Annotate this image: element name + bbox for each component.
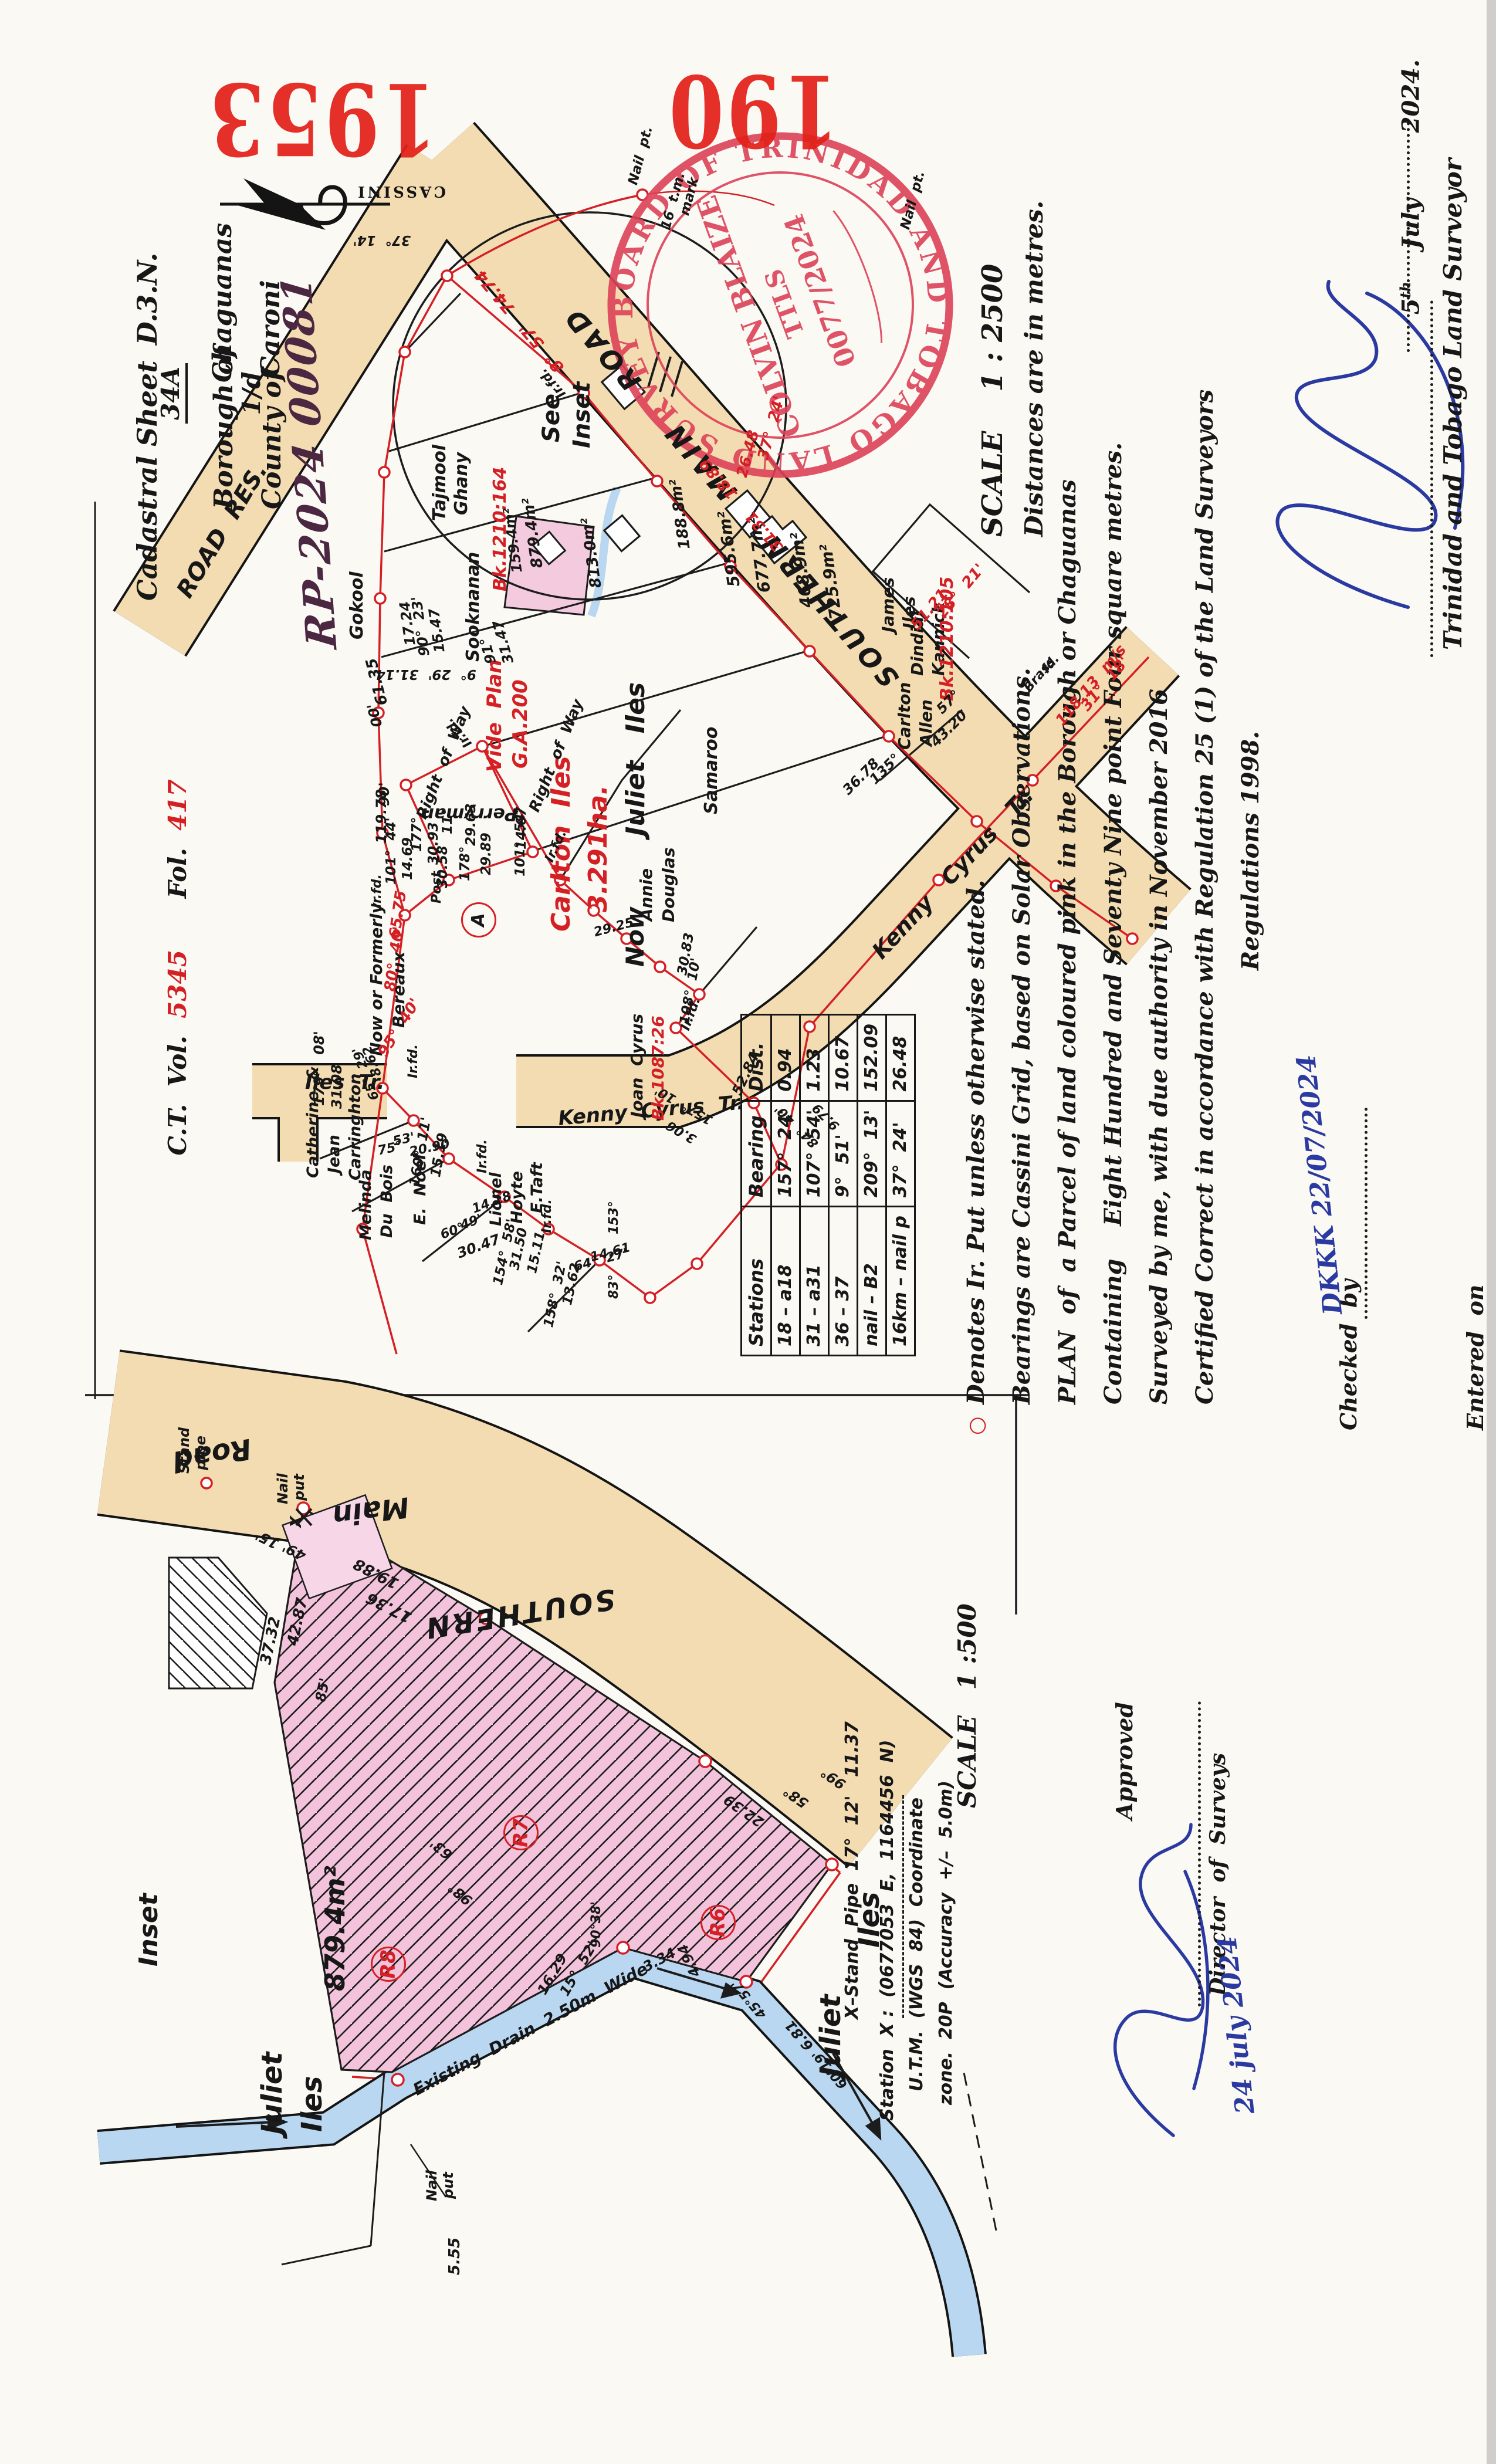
plan-label: Joan Cyrus bbox=[629, 1014, 645, 1118]
plan-label: 9° 29' 31.14 bbox=[376, 667, 476, 681]
plan-label: Now bbox=[623, 906, 648, 967]
table-cell: 18 – a18 bbox=[771, 1207, 800, 1356]
plan-label: 37° 14' bbox=[353, 233, 411, 246]
table-row: 31 – a31107° 54'1.23 bbox=[800, 1014, 829, 1355]
plan-label: 879.4m² bbox=[321, 1866, 348, 1991]
filing-stamp-1953: 1953 bbox=[207, 60, 437, 177]
plan-label: Juliet bbox=[817, 1995, 845, 2077]
plan-label: 177° bbox=[411, 817, 424, 852]
plan-label: 29.89 bbox=[480, 832, 493, 875]
plan-label: Iles bbox=[855, 1892, 884, 1948]
plan-label: Nail bbox=[276, 1473, 290, 1504]
plan-label: Post bbox=[431, 871, 444, 903]
plan-label: Ir.fd. bbox=[541, 1199, 554, 1233]
table-row: 16km – nail p37° 24'26.48 bbox=[886, 1014, 915, 1355]
note-line: Denotes Ir. Put unless otherwise stated. bbox=[962, 595, 1008, 1404]
date-month: July bbox=[1397, 198, 1424, 249]
station-text-line: zone. 20P (Accuracy +/– 5.0m) bbox=[937, 1781, 955, 2105]
plan-label: R7 bbox=[503, 1815, 539, 1850]
ct-vol-label: C.T. Vol. bbox=[163, 1035, 192, 1155]
table-cell: 37° 24' bbox=[886, 1101, 915, 1206]
note-line: Certified Correct in accordance with Reg… bbox=[1191, 595, 1237, 1404]
table-header: Stations bbox=[742, 1207, 771, 1356]
checked-by-line bbox=[1365, 1108, 1368, 1319]
table-cell: 26.48 bbox=[886, 1014, 915, 1101]
table-cell: 152.09 bbox=[858, 1014, 886, 1101]
plan-label: Stand bbox=[177, 1427, 191, 1474]
scale-main: SCALE 1 : 2500 bbox=[979, 264, 1007, 537]
date-day-suffix: th bbox=[1397, 282, 1414, 299]
table-cell: 31 – a31 bbox=[800, 1207, 829, 1356]
table-body: 18 – a18157° 24'0.9431 – a31107° 54'1.23… bbox=[771, 1014, 915, 1355]
plan-label: Carringhton bbox=[347, 1074, 363, 1180]
survey-date-underline bbox=[1407, 122, 1410, 352]
plan-label: 11° bbox=[441, 808, 455, 834]
plan-label: Jean bbox=[326, 1135, 342, 1173]
sheet-number-top: 34A bbox=[158, 363, 188, 424]
plan-label: James bbox=[880, 577, 896, 632]
plan-label: Inset bbox=[570, 382, 594, 448]
north-arrow-label: CASSINI bbox=[356, 182, 446, 200]
table-row: 36 – 379° 51'10.67 bbox=[829, 1014, 858, 1355]
station-text-line: X–Stand Pipe 17° 12' 11.37 bbox=[844, 1721, 861, 2019]
surveyor-signature-line bbox=[1430, 300, 1433, 657]
plan-label: Ir.fd. bbox=[371, 874, 384, 908]
table-cell: 10.67 bbox=[829, 1014, 858, 1101]
plan-label: 3.291ha. bbox=[585, 785, 611, 912]
table-header: Bearing bbox=[742, 1101, 771, 1206]
plan-label: 90°38' bbox=[590, 1901, 603, 1948]
station-text-line: U.T.M. (WGS 84) Coordinate bbox=[908, 1798, 926, 2091]
plan-label: Main bbox=[331, 1492, 411, 1530]
approved-label: Approved bbox=[1113, 1702, 1136, 1820]
notes-lines: Denotes Ir. Put unless otherwise stated.… bbox=[962, 595, 1282, 1404]
plan-label: 153° bbox=[608, 1201, 621, 1234]
plan-label: put bbox=[292, 1474, 306, 1501]
date-day: 5 bbox=[1397, 298, 1424, 314]
plan-label: 29.63 bbox=[465, 803, 478, 846]
entered-on-line bbox=[1490, 1108, 1493, 1319]
plan-label: Melinda bbox=[358, 1170, 374, 1240]
inset-scale: SCALE 1 :500 bbox=[955, 1603, 980, 1808]
plan-label: Bk.1087:26 bbox=[650, 1016, 666, 1121]
distances-note: Distances are in metres. bbox=[1022, 201, 1047, 537]
plan-label: Douglas bbox=[661, 847, 677, 922]
plan-label: 179° 08' bbox=[312, 1031, 326, 1106]
plan-label: Du Bois bbox=[379, 1165, 395, 1238]
plan-label: See bbox=[540, 394, 563, 442]
plan-label: Samaroo bbox=[703, 727, 720, 814]
table-cell: 0.94 bbox=[771, 1014, 800, 1101]
station-underline bbox=[902, 1795, 904, 2018]
plan-label: put bbox=[441, 2172, 455, 2199]
plan-label: Inset bbox=[136, 1893, 162, 1967]
table-cell: 16km – nail p bbox=[886, 1207, 915, 1356]
plan-label: pipe bbox=[194, 1436, 208, 1470]
plan-label: Ghany bbox=[453, 452, 471, 515]
note-line: Containing Eight Hundred and Seventy Nin… bbox=[1099, 595, 1145, 1404]
filing-stamp-190: 190 bbox=[666, 52, 839, 169]
table-cell: 1.23 bbox=[800, 1014, 829, 1101]
plan-label: R8 bbox=[371, 1947, 406, 1982]
table-cell: 36 – 37 bbox=[829, 1207, 858, 1356]
scanned-survey-plan: CASSINI LAND SURVEY BOARD OF TRINIDAD AN… bbox=[0, 0, 1496, 2464]
plan-label: G.A.200 bbox=[510, 679, 530, 769]
note-line: Bearings are Cassini Grid, based on Sola… bbox=[1008, 595, 1054, 1404]
plan-label: X bbox=[289, 1516, 304, 1528]
director-signature bbox=[1115, 1825, 1208, 2135]
survey-plan-document: CASSINI LAND SURVEY BOARD OF TRINIDAD AN… bbox=[0, 0, 1496, 2464]
table-row: nail – B2209° 13'152.09 bbox=[858, 1014, 886, 1355]
table-row: 18 – a18157° 24'0.94 bbox=[771, 1014, 800, 1355]
survey-date-line: 5th July 2024. bbox=[1375, 59, 1446, 347]
fol-value: 417 bbox=[163, 779, 192, 831]
plan-label: 101° 44' bbox=[385, 817, 398, 885]
plan-label: 178° bbox=[459, 846, 472, 881]
plan-label: 14.67 bbox=[515, 807, 529, 849]
plan-label: 83° bbox=[608, 1274, 621, 1299]
plan-label: Tajmool bbox=[431, 445, 449, 521]
plan-label: Vide Plan bbox=[485, 659, 505, 772]
plan-label: Juliet bbox=[258, 2052, 286, 2134]
sheet-suffix: D.3.N. bbox=[134, 253, 161, 345]
plan-label: Ir.fd. bbox=[407, 1044, 420, 1078]
table-cell: 209° 13' bbox=[858, 1101, 886, 1206]
entered-on-label: Entered on bbox=[1464, 1284, 1487, 1430]
note-line: Regulations 1998. bbox=[1237, 595, 1282, 1404]
plan-label: Nail bbox=[425, 2170, 439, 2201]
plan-label: Gokool bbox=[348, 571, 366, 639]
director-signature-line bbox=[1198, 1701, 1201, 2006]
plan-label: Ir.fd. bbox=[476, 1139, 489, 1173]
table-cell: nail – B2 bbox=[858, 1207, 886, 1356]
note-line: Surveyed by me, with due authority in No… bbox=[1145, 595, 1191, 1404]
borough-value: Chaguanas bbox=[210, 223, 236, 383]
plan-label: A bbox=[461, 902, 496, 937]
ct-vol-line: C.T. Vol. 5345 Fol. 417 bbox=[141, 779, 215, 1190]
certification-notes: ○ Denotes Ir. Put unless otherwise state… bbox=[962, 595, 1282, 1404]
fol-label: Fol. bbox=[163, 848, 192, 898]
plan-label: Iles bbox=[298, 2076, 326, 2132]
plan-label: R6 bbox=[700, 1905, 736, 1940]
plan-label: Carlton bbox=[896, 682, 913, 750]
plan-label: 5.55 bbox=[447, 2238, 462, 2275]
plan-label: 31.08 bbox=[330, 1064, 344, 1109]
ct-vol-value: 5345 bbox=[163, 950, 192, 1018]
plan-label: Juliet Iles bbox=[623, 682, 649, 836]
date-year: 2024. bbox=[1397, 59, 1424, 133]
denotes-circle-symbol: ○ bbox=[966, 1417, 987, 1435]
